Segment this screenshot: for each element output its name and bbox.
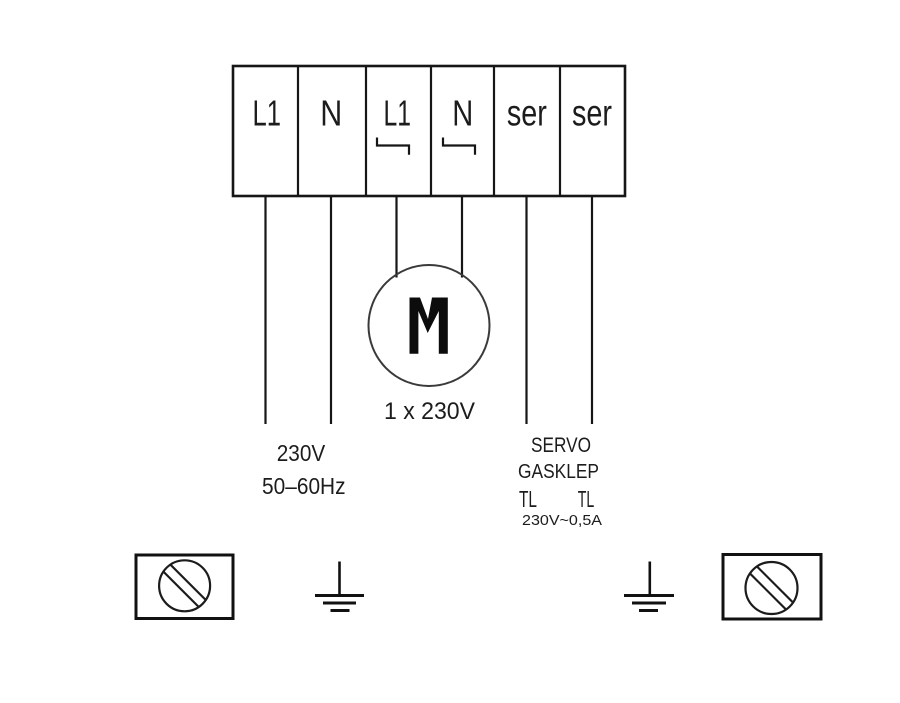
svg-text:N: N <box>452 92 473 133</box>
svg-text:TL: TL <box>519 486 537 512</box>
svg-text:ser: ser <box>572 91 612 133</box>
svg-text:230V: 230V <box>277 440 326 466</box>
svg-text:ser: ser <box>507 91 547 133</box>
svg-text:50–60Hz: 50–60Hz <box>262 473 346 499</box>
svg-text:GASKLEP: GASKLEP <box>518 461 599 483</box>
svg-text:L1: L1 <box>384 92 412 133</box>
svg-text:N: N <box>320 92 342 133</box>
svg-text:L1: L1 <box>252 92 281 133</box>
svg-text:SERVO: SERVO <box>531 434 591 457</box>
svg-text:230V~0,5A: 230V~0,5A <box>522 513 602 529</box>
svg-text:TL: TL <box>578 486 595 512</box>
svg-text:1 x 230V: 1 x 230V <box>384 398 476 425</box>
